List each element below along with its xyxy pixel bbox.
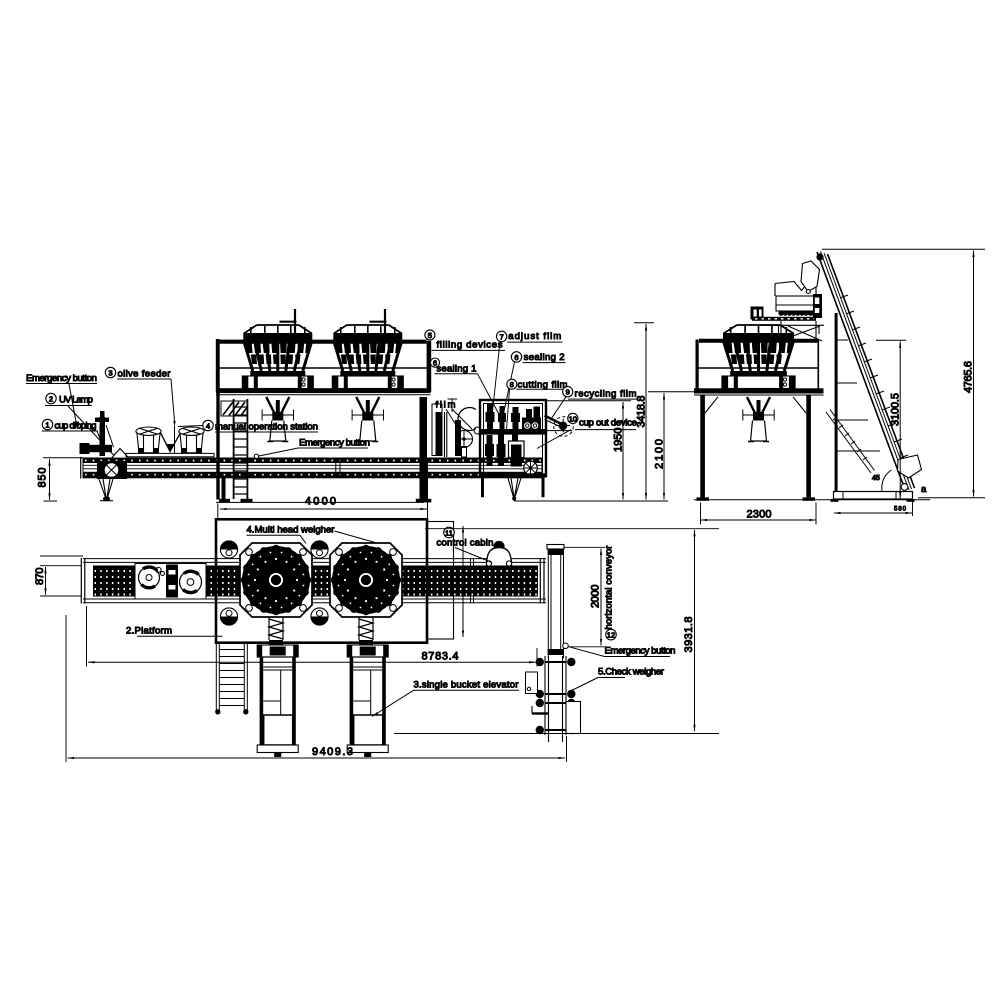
svg-text:580: 580	[894, 507, 907, 513]
svg-text:3418.8: 3418.8	[636, 396, 648, 428]
svg-text:control cabin: control cabin	[437, 538, 494, 549]
svg-text:UV Lamp: UV Lamp	[59, 395, 93, 406]
svg-text:3931.8: 3931.8	[683, 617, 695, 653]
svg-text:Emergency button: Emergency button	[299, 438, 370, 449]
svg-text:recycling film: recycling film	[575, 389, 637, 400]
svg-text:Emergency button: Emergency button	[605, 646, 676, 657]
svg-text:sealing 2: sealing 2	[524, 352, 565, 363]
svg-text:850: 850	[37, 468, 49, 488]
svg-text:filling devices: filling devices	[437, 340, 503, 351]
svg-text:3: 3	[108, 369, 112, 378]
svg-text:870: 870	[34, 568, 46, 586]
svg-text:2000: 2000	[590, 585, 602, 609]
svg-text:2: 2	[49, 395, 53, 404]
svg-text:3.single bucket elevator: 3.single bucket elevator	[414, 680, 520, 691]
svg-text:6: 6	[514, 353, 518, 362]
svg-text:manual operation station: manual operation station	[215, 422, 318, 433]
svg-text:45: 45	[872, 475, 880, 482]
svg-text:Emergency button: Emergency button	[26, 373, 97, 384]
svg-text:a: a	[921, 484, 927, 495]
svg-text:8783.4: 8783.4	[422, 651, 459, 663]
svg-text:2.Platform: 2.Platform	[126, 626, 172, 637]
svg-text:4.Multi head weigher: 4.Multi head weigher	[247, 525, 336, 536]
svg-text:3100.5: 3100.5	[890, 393, 902, 426]
svg-text:cup out device: cup out device	[579, 418, 637, 429]
svg-text:1: 1	[45, 421, 49, 430]
svg-text:4765.6: 4765.6	[963, 361, 975, 393]
svg-text:5.Check weigher: 5.Check weigher	[598, 667, 665, 678]
svg-text:2100: 2100	[654, 439, 666, 469]
svg-text:olive feeder: olive feeder	[118, 369, 172, 380]
svg-text:12: 12	[607, 631, 615, 640]
svg-text:adjust film: adjust film	[508, 331, 561, 342]
svg-text:sealing 1: sealing 1	[437, 363, 477, 374]
svg-text:2300: 2300	[747, 509, 772, 521]
svg-text:4: 4	[206, 422, 210, 431]
svg-text:5: 5	[428, 331, 432, 340]
svg-text:horizontal conveyor: horizontal conveyor	[604, 545, 615, 630]
svg-text:7: 7	[499, 332, 503, 341]
svg-text:cup droping: cup droping	[55, 421, 97, 432]
svg-text:10: 10	[569, 414, 577, 423]
svg-text:11: 11	[445, 529, 453, 538]
svg-text:cutting film: cutting film	[518, 379, 568, 390]
svg-text:8: 8	[510, 380, 514, 389]
svg-text:1950: 1950	[613, 428, 625, 453]
svg-text:9: 9	[566, 388, 570, 397]
